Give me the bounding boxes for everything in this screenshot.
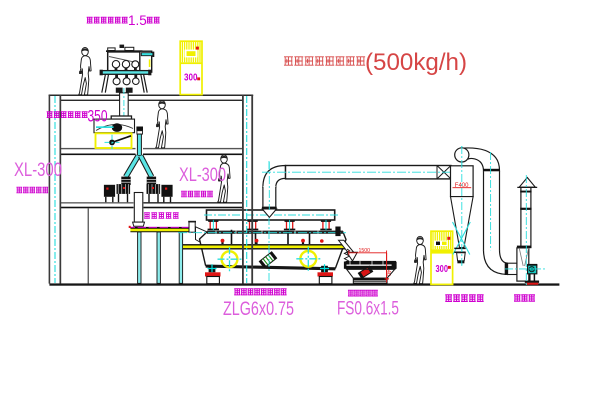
svg-text:(500kg/h): (500kg/h) bbox=[365, 49, 467, 76]
svg-text:1.5: 1.5 bbox=[128, 13, 147, 28]
svg-text:300: 300 bbox=[436, 263, 449, 275]
svg-text:XL-300: XL-300 bbox=[14, 159, 62, 181]
svg-text:350: 350 bbox=[88, 108, 108, 126]
svg-text:XL-300: XL-300 bbox=[179, 164, 226, 186]
svg-text:FS0.6x1.5: FS0.6x1.5 bbox=[337, 299, 399, 320]
svg-text:1500: 1500 bbox=[359, 248, 371, 254]
svg-text:ZLG6x0.75: ZLG6x0.75 bbox=[223, 299, 294, 320]
svg-text:300: 300 bbox=[184, 72, 198, 84]
